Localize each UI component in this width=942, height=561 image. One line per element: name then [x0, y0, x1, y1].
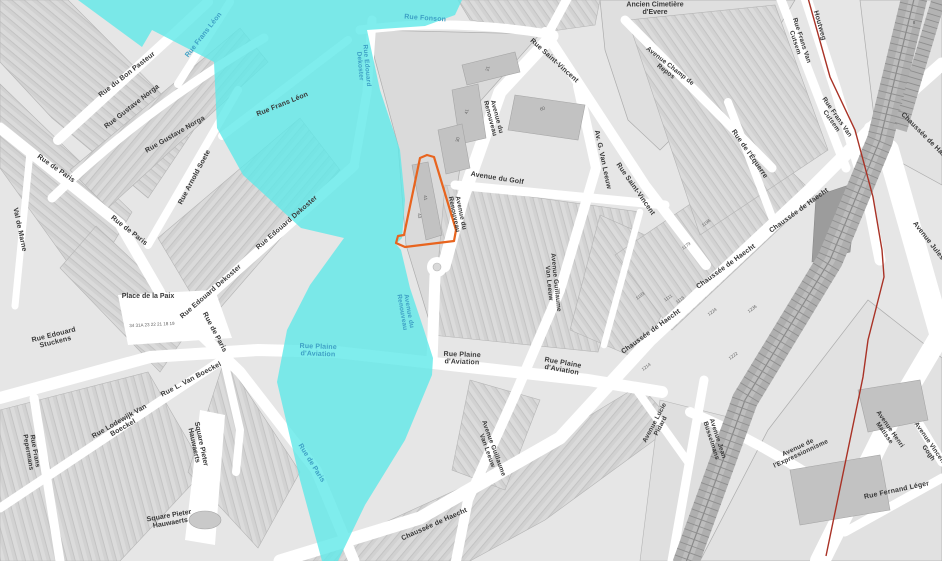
road-renouveau-lower: [432, 276, 435, 362]
street-label: Rue Plained'Aviation: [299, 343, 337, 359]
roundabout-island: [433, 263, 441, 271]
map-viewport[interactable]: Rue du Bon PasteurRue Frans LéonRue Fran…: [0, 0, 942, 561]
square-pond: [189, 511, 221, 529]
place-label: Place de la Paix: [122, 293, 175, 300]
street-label: Rue Plained'Aviation: [443, 351, 481, 367]
map-canvas[interactable]: Rue du Bon PasteurRue Frans LéonRue Fran…: [0, 0, 942, 561]
